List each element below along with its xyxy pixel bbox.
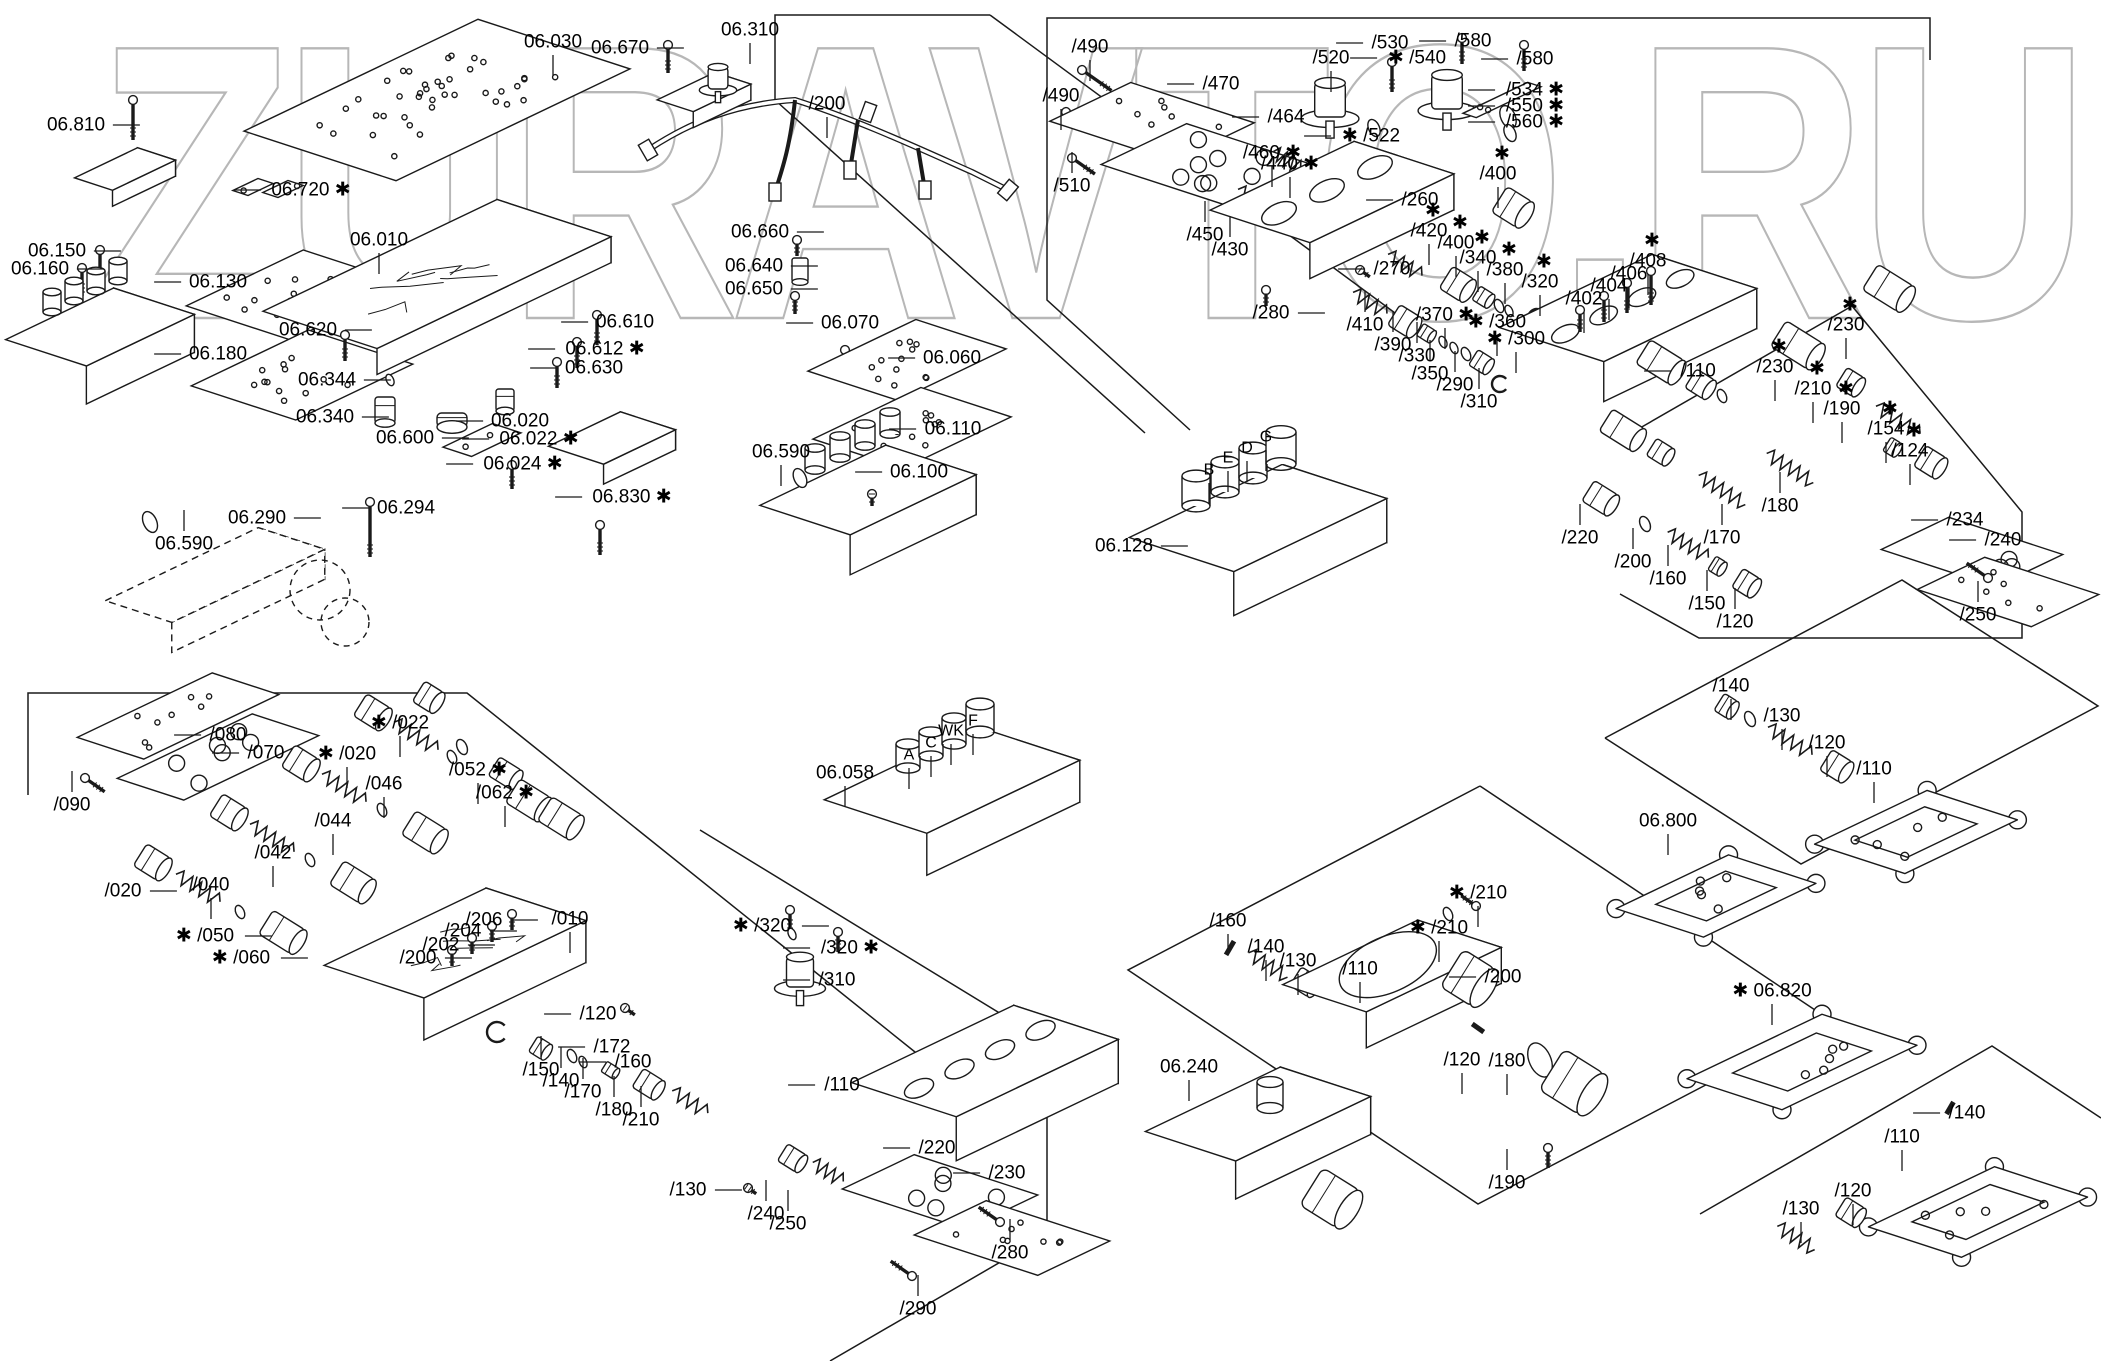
valve-part — [401, 811, 451, 857]
part-label: /320 ✱ — [821, 938, 879, 959]
part-label: 06.660 — [731, 222, 789, 243]
cover-part — [1859, 1158, 2096, 1267]
part-label: /190 — [1489, 1173, 1526, 1194]
kit-asterisk: ✱ — [1644, 231, 1660, 252]
part-label: /070 — [248, 743, 285, 764]
solenoid-part — [1257, 1077, 1283, 1114]
part-label: C — [925, 735, 937, 752]
solenoid-part — [43, 288, 61, 316]
part-label: 06.630 — [565, 358, 623, 379]
part-label: /490 — [1072, 37, 1109, 58]
valve-part — [209, 794, 251, 834]
part-label: /464 — [1268, 107, 1305, 128]
part-label: /110 — [824, 1075, 860, 1096]
valve-part — [1599, 409, 1650, 454]
pin-part — [1226, 941, 1234, 955]
solenoid-part — [855, 420, 875, 450]
part-label: ✱ /320 — [733, 916, 791, 937]
spring-part — [1763, 447, 1817, 488]
part-label: 06.060 — [923, 348, 981, 369]
ring-part — [454, 738, 469, 757]
valve-part — [1646, 438, 1677, 468]
bolt-part — [888, 1257, 918, 1282]
part-label: /320 — [1522, 272, 1559, 293]
ring-part — [233, 904, 246, 920]
part-label: /220 — [1562, 528, 1599, 549]
kit-asterisk: ✱ — [1536, 252, 1552, 273]
valve-part — [375, 397, 395, 427]
part-label: /140 — [1713, 676, 1750, 697]
kit-asterisk: ✱ — [1425, 201, 1441, 222]
parts-diagram: ZURAVTO.RU06.81006.720 ✱06.15006.16006.1… — [0, 0, 2101, 1361]
part-label: /210 — [1795, 379, 1832, 400]
part-label: B — [1204, 462, 1215, 479]
part-label: ✱ /210 — [1410, 918, 1468, 939]
part-label: /120 — [580, 1004, 617, 1025]
part-label: 06.340 — [296, 407, 354, 428]
part-label: /380 — [1487, 260, 1524, 281]
part-label: /170 — [1704, 528, 1741, 549]
part-label: 06.294 — [377, 498, 436, 519]
part-label: 06.110 — [925, 419, 982, 440]
bolt-part — [596, 521, 605, 555]
part-label: ✱ 06.820 — [1732, 981, 1811, 1002]
part-label: /190 — [1824, 399, 1861, 420]
part-label: F — [968, 713, 978, 730]
part-label: /130 — [1764, 706, 1801, 727]
part-label: 06.022 ✱ — [499, 429, 578, 450]
part-label: 06.128 — [1095, 536, 1153, 557]
part-label: /120 — [1444, 1050, 1481, 1071]
spring-part — [1774, 1220, 1819, 1255]
kit-asterisk: ✱ — [1809, 359, 1825, 380]
part-label: /200 — [400, 948, 437, 969]
part-label: 06.070 — [821, 313, 879, 334]
spring-part — [809, 1157, 847, 1188]
part-label: ✱ /060 — [212, 948, 270, 969]
pin-part — [1472, 1024, 1483, 1032]
part-label: /510 — [1054, 176, 1091, 197]
part-label: /234 — [1947, 510, 1984, 531]
part-label: /062 ✱ — [476, 783, 534, 804]
part-label: /180 — [1762, 496, 1799, 517]
part-label: /240 — [1985, 530, 2022, 551]
part-label: /042 — [255, 843, 292, 864]
part-label: ✱ /022 — [371, 713, 429, 734]
solenoid-part — [880, 408, 900, 438]
part-label: ✱ /300 — [1487, 329, 1545, 350]
part-label: /110 — [1884, 1127, 1920, 1148]
kit-asterisk: ✱ — [1838, 379, 1854, 400]
part-label: /154 — [1868, 419, 1905, 440]
part-label: /010 — [552, 909, 589, 930]
part-label: WK — [938, 723, 964, 740]
part-label: /410 — [1347, 315, 1384, 336]
part-label: 06.590 — [752, 442, 810, 463]
part-label: /230 — [989, 1163, 1026, 1184]
part-label: /490 — [1043, 86, 1080, 107]
part-label: /110 — [1856, 759, 1892, 780]
connector — [844, 161, 856, 179]
part-label: /140 — [1949, 1103, 1986, 1124]
part-label: 06.024 ✱ — [483, 454, 562, 475]
part-label: /400 — [1480, 164, 1517, 185]
part-label: 06.800 — [1639, 811, 1697, 832]
part-label: /200 — [809, 94, 846, 115]
kit-asterisk: ✱ — [1906, 421, 1922, 442]
part-label: D — [1241, 440, 1253, 457]
diagram-canvas: ZURAVTO.RU06.81006.720 ✱06.15006.16006.1… — [0, 0, 2101, 1361]
part-label: ✱ /020 — [318, 744, 376, 765]
part-label: /124 — [1892, 441, 1929, 462]
cover-part — [1806, 781, 2027, 882]
part-label: 06.610 — [596, 312, 654, 333]
part-label: /046 — [366, 774, 403, 795]
part-label: /580 — [1517, 49, 1554, 70]
part-label: ✱ /540 — [1388, 48, 1446, 69]
part-label: /120 — [1809, 733, 1846, 754]
bolt-part — [366, 498, 375, 557]
part-label: /470 — [1203, 74, 1240, 95]
part-label: A — [904, 747, 915, 764]
connector — [769, 183, 781, 201]
part-label: /130 — [1783, 1199, 1820, 1220]
part-label: ✱ /522 — [1342, 126, 1400, 147]
part-label: 06.310 — [721, 20, 779, 41]
part-label: /200 — [1485, 967, 1522, 988]
part-label: /560 ✱ — [1506, 112, 1564, 133]
valve-part — [1732, 568, 1765, 600]
part-label: 06.612 ✱ — [565, 339, 644, 360]
part-label: /020 — [105, 881, 142, 902]
valve-part — [1582, 480, 1623, 518]
part-label: 06.030 — [524, 32, 582, 53]
part-label: /200 — [1615, 552, 1652, 573]
spring-part — [668, 1085, 711, 1119]
part-label: /270 — [1374, 259, 1411, 280]
part-label: E — [1223, 450, 1234, 467]
pump-detail — [321, 598, 369, 646]
part-label: /220 — [919, 1138, 956, 1159]
part-label: /520 — [1313, 48, 1350, 69]
part-label: /160 — [615, 1052, 652, 1073]
solenoid-part — [65, 277, 83, 305]
part-label: /230 — [1828, 315, 1865, 336]
bolt-part — [742, 1182, 759, 1197]
part-label: /130 — [670, 1180, 707, 1201]
snap-ring-part — [487, 1022, 505, 1042]
part-label: 06.670 — [591, 38, 649, 59]
valve-part — [329, 861, 379, 907]
part-label: 06.160 — [11, 259, 69, 280]
part-label: /090 — [54, 795, 91, 816]
connector — [919, 181, 931, 199]
part-label: /210 — [623, 1110, 660, 1131]
kit-asterisk: ✱ — [1452, 213, 1468, 234]
ring-part — [1742, 710, 1757, 729]
part-label: 06.100 — [890, 462, 948, 483]
part-label: /290 — [900, 1299, 937, 1320]
part-label: /120 — [1835, 1181, 1872, 1202]
part-label: 06.010 — [350, 230, 408, 251]
solenoid-part — [830, 432, 850, 462]
bolt-part — [79, 772, 107, 795]
part-label: /180 — [1489, 1051, 1526, 1072]
part-label: G — [1260, 429, 1272, 446]
part-label: /280 — [1253, 303, 1290, 324]
part-label: /430 — [1212, 240, 1249, 261]
valve-part — [792, 258, 808, 285]
part-label: 06.590 — [155, 534, 213, 555]
valve-part — [777, 1144, 810, 1175]
part-label: /160 — [1210, 911, 1247, 932]
kit-asterisk: ✱ — [1474, 228, 1490, 249]
valve-part — [1708, 556, 1730, 578]
cover-part — [1678, 1005, 1926, 1119]
ring-part — [303, 852, 316, 868]
part-label: /230 — [1757, 357, 1794, 378]
part-label: 06.830 ✱ — [592, 487, 671, 508]
cover-part — [1607, 846, 1825, 946]
part-label: 06.640 — [725, 256, 783, 277]
part-label: 06.650 — [725, 279, 783, 300]
part-label: 06.180 — [189, 344, 247, 365]
valve-part — [632, 1068, 668, 1102]
valve-part — [1714, 693, 1742, 721]
valve-part — [133, 844, 175, 884]
part-label: /052 ✱ — [449, 760, 507, 781]
part-label: /408 — [1630, 251, 1667, 272]
part-label: 06.290 — [228, 508, 286, 529]
part-label: /310 — [819, 970, 856, 991]
part-label: /580 — [1455, 31, 1492, 52]
spring-part — [318, 768, 370, 807]
part-label: /130 — [1280, 951, 1317, 972]
part-label: /250 — [1960, 605, 1997, 626]
ring-part — [139, 509, 160, 534]
kit-asterisk: ✱ — [1501, 240, 1517, 261]
kit-asterisk: ✱ — [1494, 144, 1510, 165]
part-label: /044 — [315, 811, 352, 832]
part-label: /310 — [1461, 392, 1498, 413]
part-label: /120 — [1717, 612, 1754, 633]
part-label: 06.810 — [47, 115, 105, 136]
part-label: /040 — [193, 875, 230, 896]
valve-part — [437, 413, 467, 433]
part-label: /440 ✱ — [1261, 154, 1319, 175]
part-label: /080 — [210, 725, 247, 746]
part-label: /370 ✱ — [1416, 305, 1474, 326]
solenoid-part — [87, 267, 105, 295]
solenoid-part — [109, 257, 127, 285]
part-label: 06.620 — [279, 320, 337, 341]
bolt-part — [1544, 1144, 1553, 1168]
part-label: /110 — [1680, 361, 1716, 382]
part-label: 06.130 — [189, 272, 247, 293]
ring-part — [375, 802, 388, 818]
part-label: /280 — [992, 1243, 1029, 1264]
valve-part — [1300, 1168, 1368, 1234]
ring-part — [1637, 515, 1652, 534]
part-label: 06.720 ✱ — [271, 180, 350, 201]
part-label: 06.344 — [298, 370, 357, 391]
kit-asterisk: ✱ — [1842, 295, 1858, 316]
part-label: 06.240 — [1160, 1057, 1218, 1078]
kit-asterisk: ✱ — [1882, 399, 1898, 420]
valve-part — [412, 681, 448, 716]
ring-part — [565, 1048, 578, 1064]
part-label: /110 — [1342, 959, 1378, 980]
bolt-part — [619, 1002, 637, 1019]
kit-asterisk: ✱ — [1771, 337, 1787, 358]
part-label: /250 — [770, 1214, 807, 1235]
part-label: 06.600 — [376, 428, 434, 449]
valve-part — [1819, 749, 1856, 785]
part-label: /160 — [1650, 569, 1687, 590]
part-label: ✱ /210 — [1449, 883, 1507, 904]
part-label: ✱ /050 — [176, 926, 234, 947]
part-label: 06.058 — [816, 763, 874, 784]
